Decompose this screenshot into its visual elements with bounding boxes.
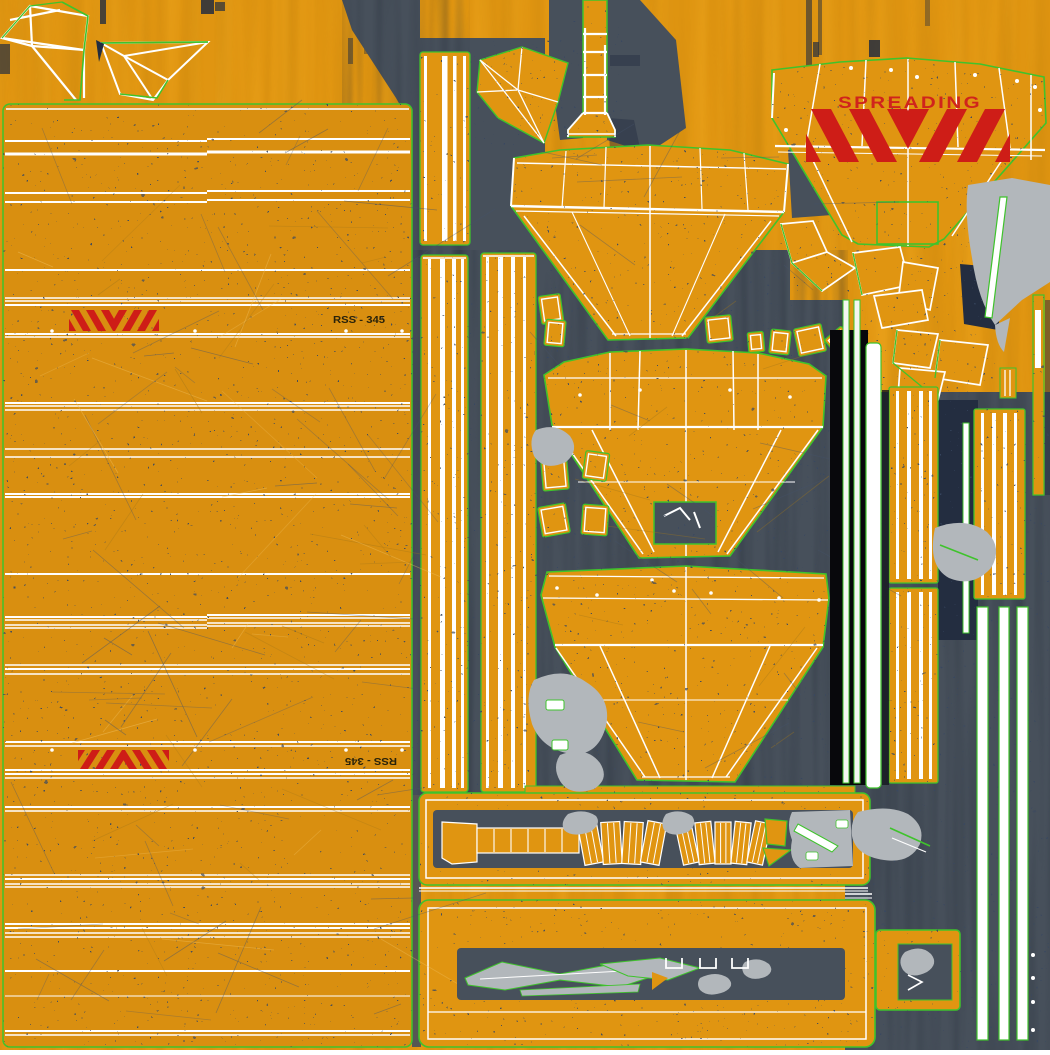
svg-text:RSS - 345: RSS - 345 xyxy=(345,755,397,766)
svg-text:RSS - 345: RSS - 345 xyxy=(333,315,385,326)
